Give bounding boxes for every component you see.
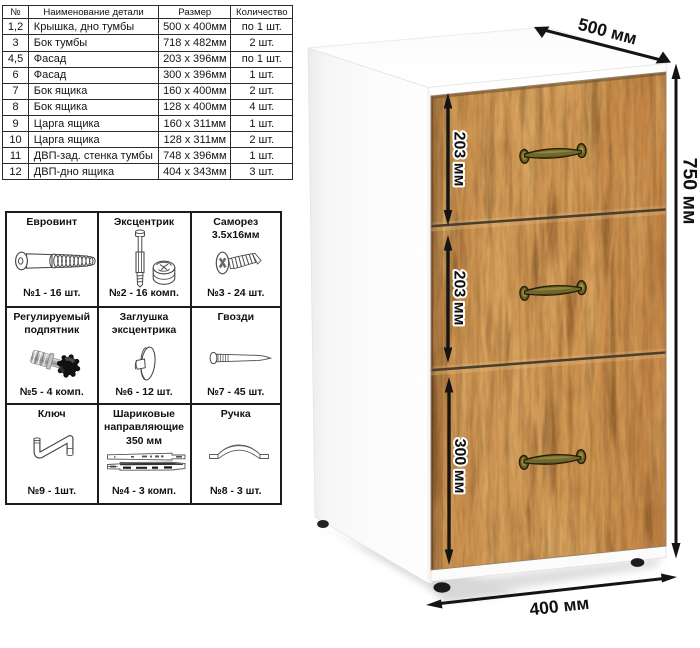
svg-text:300 мм: 300 мм bbox=[451, 439, 468, 494]
svg-text:400 мм: 400 мм bbox=[528, 593, 590, 620]
svg-text:203 мм: 203 мм bbox=[451, 271, 468, 326]
svg-text:203 мм: 203 мм bbox=[451, 132, 468, 187]
svg-text:750 мм: 750 мм bbox=[679, 158, 700, 225]
